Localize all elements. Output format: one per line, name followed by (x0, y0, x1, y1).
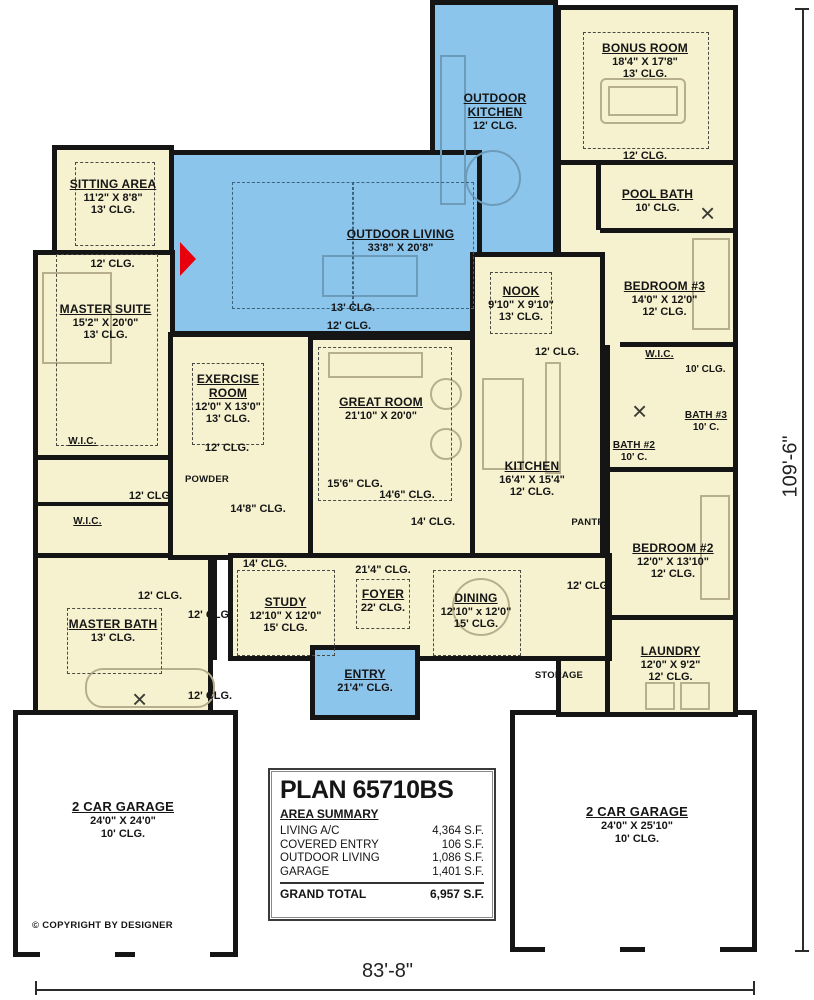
room-label-pantry: PANTRY (562, 518, 620, 529)
room-size: 14'0" X 12'0" (612, 294, 717, 307)
room-name: PANTRY (562, 518, 620, 529)
room-label-bedroom3: BEDROOM #3 14'0" X 12'0" 12' CLG. (612, 280, 717, 319)
floor-plan-canvas: × × × SITTING AREA 11'2" X 8'8" 13' CLG.… (0, 0, 814, 1000)
room-ceiling: 13' CLG. (480, 311, 562, 324)
room-ceiling: 15' CLG. (238, 622, 333, 635)
room-ceiling: 12' CLG. (618, 568, 728, 581)
room-label-laundry: LAUNDRY 12'0" X 9'2" 12' CLG. (618, 645, 723, 684)
room-name: W.I.C. (55, 436, 110, 448)
fireplace-icon (180, 242, 196, 276)
room-label-master-bath: MASTER BATH 13' CLG. (68, 618, 158, 644)
room-ceiling: 13' CLG. (68, 632, 158, 645)
room-label-bedroom2: BEDROOM #2 12'0" X 13'10" 12' CLG. (618, 542, 728, 581)
area-row-value: 1,401 S.F. (432, 866, 484, 878)
room-label-study: STUDY 12'10" X 12'0" 15' CLG. (238, 596, 333, 635)
room-label-powder: POWDER (178, 475, 236, 486)
room-name: BATH #2 (608, 440, 660, 452)
room-ceiling: 13' CLG. (68, 204, 158, 217)
area-row-value: 4,364 S.F. (432, 825, 484, 837)
ceiling-label: 12' CLG. (314, 320, 384, 332)
ceiling-label: 12' CLG. (116, 490, 186, 502)
room-ceiling: 13' CLG. (585, 68, 705, 81)
room-size: 24'0" X 24'0" (58, 815, 188, 828)
wall-pool-bath-left (596, 165, 601, 230)
room-label-great-room: GREAT ROOM 21'10" X 20'0" (326, 396, 436, 422)
room-size: 9'10" X 9'10" (480, 299, 562, 312)
room-name: MASTER BATH (68, 618, 158, 632)
room-ceiling: 12' CLG. (440, 120, 550, 133)
room-label-foyer: FOYER 22' CLG. (348, 588, 418, 614)
area-row: COVERED ENTRY 106 S.F. (280, 839, 484, 851)
grand-total-value: 6,957 S.F. (430, 887, 484, 901)
room-name: BEDROOM #2 (618, 542, 728, 556)
room-ceiling: 15' CLG. (426, 618, 526, 631)
room-label-nook: NOOK 9'10" X 9'10" 13' CLG. (480, 285, 562, 324)
plan-title: PLAN 65710BS (280, 776, 484, 805)
room-size: 16'4" X 15'4" (482, 474, 582, 487)
ceiling-label: 12' CLG. (175, 609, 245, 621)
room-name: FOYER (348, 588, 418, 602)
ceiling-label: 10' CLG. (678, 364, 733, 375)
ceiling-label: 14'8" CLG. (228, 503, 288, 515)
shower-x-icon: × (632, 398, 647, 424)
room-ceiling: 12' CLG. (618, 671, 723, 684)
ceiling-label: 14'6" CLG. (372, 489, 442, 501)
ceiling-label: 14' CLG. (398, 516, 468, 528)
room-size: 11'2" X 8'8" (68, 192, 158, 205)
room-name: ENTRY (330, 668, 400, 682)
room-ceiling: 10' CLG. (605, 202, 710, 215)
area-row-label: OUTDOOR LIVING (280, 852, 380, 864)
room-label-master-suite: MASTER SUITE 15'2" X 20'0" 13' CLG. (48, 303, 163, 342)
room-label-garage-right: 2 CAR GARAGE 24'0" X 25'10" 10' CLG. (572, 805, 702, 845)
room-ceiling: 12' CLG. (482, 486, 582, 499)
overall-width-dimension: 83'-8" (362, 960, 413, 983)
garage-door-gap (645, 945, 720, 954)
room-name: STORAGE (530, 671, 588, 682)
area-row-label: LIVING A/C (280, 825, 339, 837)
room-name: GREAT ROOM (326, 396, 436, 410)
room-size: 24'0" X 25'10" (572, 820, 702, 833)
room-name: NOOK (480, 285, 562, 299)
room-name: LAUNDRY (618, 645, 723, 659)
room-ceiling: 13' CLG. (48, 329, 163, 342)
room-size: 12'0" X 13'0" (188, 401, 268, 414)
room-ceiling: 13' CLG. (188, 413, 268, 426)
ceiling-label: 12' CLG. (522, 346, 592, 358)
room-label-kitchen: KITCHEN 16'4" X 15'4" 12' CLG. (482, 460, 582, 499)
room-size: 12'0" X 9'2" (618, 659, 723, 672)
wall-above-laundry (608, 615, 735, 620)
room-ceiling: 12' CLG. (612, 306, 717, 319)
room-size: 15'2" X 20'0" (48, 317, 163, 330)
room-size: 12'10" X 12'0" (238, 610, 333, 623)
plan-summary-box: PLAN 65710BS AREA SUMMARY LIVING A/C 4,3… (268, 768, 496, 921)
room-size: 33'8" X 20'8" (318, 242, 483, 255)
ceiling-label: 12' CLG. (75, 258, 150, 270)
ceiling-label: 12' CLG. (554, 580, 624, 592)
grand-total-row: GRAND TOTAL 6,957 S.F. (280, 882, 484, 901)
room-ceiling: 10' C. (608, 452, 660, 464)
area-row-value: 1,086 S.F. (432, 852, 484, 864)
room-ceiling: 10' CLG. (58, 828, 188, 841)
room-ceiling: 21'4" CLG. (330, 682, 400, 695)
room-name: BEDROOM #3 (612, 280, 717, 294)
room-size: 18'4" X 17'8" (585, 56, 705, 69)
room-name: DINING (426, 592, 526, 606)
room-label-storage: STORAGE (530, 671, 588, 682)
area-row: GARAGE 1,401 S.F. (280, 866, 484, 878)
room-name: 2 CAR GARAGE (572, 805, 702, 820)
dimension-tick (795, 950, 809, 952)
master-suite-dashed-box (56, 254, 158, 446)
wall-between-wics (38, 502, 170, 506)
wall-below-pool-bath (600, 228, 735, 233)
garage-door-gap (545, 945, 620, 954)
room-label-entry: ENTRY 21'4" CLG. (330, 668, 400, 694)
area-row-label: COVERED ENTRY (280, 839, 379, 851)
room-label-garage-left: 2 CAR GARAGE 24'0" X 24'0" 10' CLG. (58, 800, 188, 840)
room-name: POOL BATH (605, 188, 710, 202)
master-tub-icon (85, 668, 215, 708)
room-name: SITTING AREA (68, 178, 158, 192)
room-name: OUTDOOR KITCHEN (440, 92, 550, 120)
room-ceiling: 22' CLG. (348, 602, 418, 615)
room-label-exercise: EXERCISE ROOM 12'0" X 13'0" 13' CLG. (188, 373, 268, 426)
area-row: LIVING A/C 4,364 S.F. (280, 825, 484, 837)
room-size: 12'0" X 13'10" (618, 556, 728, 569)
room-ceiling: 10' CLG. (572, 833, 702, 846)
room-name: POWDER (178, 475, 236, 486)
room-label-wic-top: W.I.C. (55, 436, 110, 448)
wall-right-hall (605, 345, 610, 715)
room-name: W.I.C. (60, 516, 115, 528)
ceiling-label: 12' CLG. (610, 150, 680, 162)
room-name: BATH #3 (680, 410, 732, 422)
area-row-label: GARAGE (280, 866, 329, 878)
room-label-dining: DINING 12'10" x 12'0" 15' CLG. (426, 592, 526, 631)
dryer-icon (680, 682, 710, 710)
bottom-dimension-line (35, 989, 755, 991)
ceiling-label: 21'4" CLG. (348, 564, 418, 576)
area-row-value: 106 S.F. (442, 839, 484, 851)
garage-door-gap (135, 950, 210, 959)
room-label-sitting: SITTING AREA 11'2" X 8'8" 13' CLG. (68, 178, 158, 217)
wall-below-bedroom3 (620, 342, 735, 347)
kitchen-counter-icon (545, 362, 561, 474)
wall-above-bedroom2 (608, 467, 735, 472)
room-name: 2 CAR GARAGE (58, 800, 188, 815)
room-name: W.I.C. (632, 349, 687, 361)
overall-height-dimension: 109'-6" (780, 435, 803, 497)
ceiling-label: 14' CLG. (230, 558, 300, 570)
copyright-text: © COPYRIGHT BY DESIGNER (32, 920, 173, 931)
room-name: BONUS ROOM (585, 42, 705, 56)
room-label-wic-right: W.I.C. (632, 349, 687, 361)
room-name: STUDY (238, 596, 333, 610)
ceiling-label: 13' CLG. (318, 302, 388, 314)
room-ceiling: 10' C. (680, 422, 732, 434)
room-name: MASTER SUITE (48, 303, 163, 317)
wic-block-outline (33, 455, 175, 560)
room-label-bonus: BONUS ROOM 18'4" X 17'8" 13' CLG. (585, 42, 705, 81)
room-name: OUTDOOR LIVING (318, 228, 483, 242)
shower-x-icon: × (132, 686, 147, 712)
kitchen-island-icon (482, 378, 524, 470)
room-label-bath2: BATH #2 10' C. (608, 440, 660, 463)
room-label-wic-bottom: W.I.C. (60, 516, 115, 528)
area-summary-heading: AREA SUMMARY (280, 807, 484, 821)
room-size: 12'10" x 12'0" (426, 606, 526, 619)
grand-total-label: GRAND TOTAL (280, 887, 366, 901)
room-name: EXERCISE ROOM (188, 373, 268, 401)
dimension-tick (753, 981, 755, 995)
room-label-outdoor-living: OUTDOOR LIVING 33'8" X 20'8" (318, 228, 483, 254)
ceiling-label: 12' CLG. (125, 590, 195, 602)
ceiling-label: 12' CLG. (192, 442, 262, 454)
dimension-tick (795, 8, 809, 10)
room-label-outdoor-kitchen: OUTDOOR KITCHEN 12' CLG. (440, 92, 550, 132)
room-name: KITCHEN (482, 460, 582, 474)
room-label-bath3: BATH #3 10' C. (680, 410, 732, 433)
washer-icon (645, 682, 675, 710)
area-row: OUTDOOR LIVING 1,086 S.F. (280, 852, 484, 864)
room-label-pool-bath: POOL BATH 10' CLG. (605, 188, 710, 214)
room-size: 21'10" X 20'0" (326, 410, 436, 423)
garage-door-gap (40, 950, 115, 959)
dimension-tick (35, 981, 37, 995)
ceiling-label: 12' CLG. (175, 690, 245, 702)
